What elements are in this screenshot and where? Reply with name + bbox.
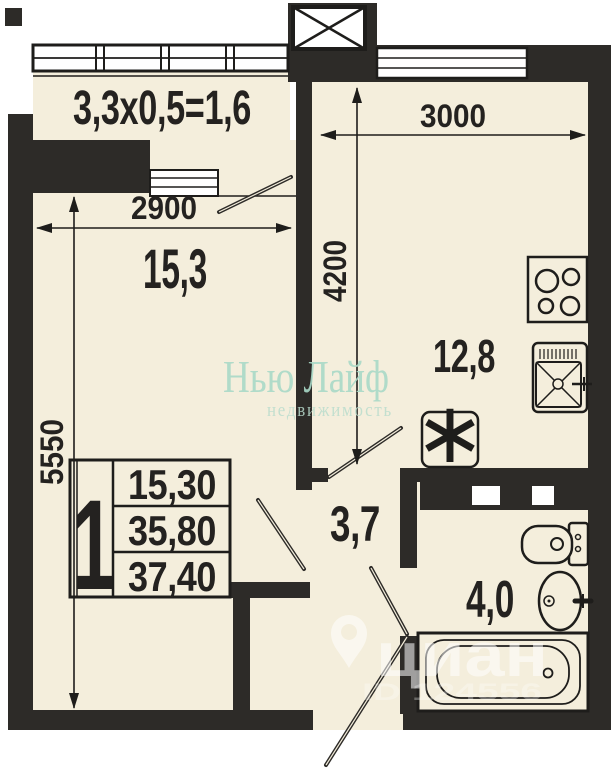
wall-bottom-right bbox=[403, 710, 611, 730]
wall-top-left-pier bbox=[5, 8, 22, 26]
washing-machine-icon: ∗ bbox=[414, 386, 485, 481]
wall-hall-stub bbox=[230, 582, 310, 598]
portal-watermark-id: ID 124556 bbox=[362, 679, 542, 706]
dim-label-2900: 2900 bbox=[131, 190, 197, 226]
balcony-area-label: 3,3x0,5=1,6 bbox=[73, 82, 251, 135]
table-total-area: 37,40 bbox=[128, 553, 216, 600]
duct-band bbox=[420, 482, 588, 510]
wall-kitchen-door-stub bbox=[296, 468, 328, 482]
dim-label-5550: 5550 bbox=[34, 419, 70, 485]
wall-hall-lower bbox=[233, 598, 250, 712]
wall-bottom-left bbox=[8, 710, 313, 730]
kitchen-area-label: 12,8 bbox=[433, 330, 495, 382]
table-living-area: 15,30 bbox=[128, 461, 216, 508]
stove-icon bbox=[528, 257, 587, 322]
kitchen-window bbox=[377, 48, 527, 78]
dim-label-3000: 3000 bbox=[420, 98, 486, 134]
wall-left bbox=[8, 114, 33, 730]
toilet-icon bbox=[522, 523, 588, 565]
table-rooms-count: 1 bbox=[72, 474, 114, 617]
wall-bath-left-upper bbox=[400, 482, 417, 568]
living-area-label: 15,3 bbox=[143, 237, 207, 300]
hall-area-label: 3,7 bbox=[330, 496, 380, 552]
wall-right bbox=[588, 82, 611, 730]
vent-shaft-icon bbox=[293, 7, 365, 49]
dim-label-4200: 4200 bbox=[317, 240, 353, 302]
table-area-without-balcony: 35,80 bbox=[128, 507, 216, 554]
wall-balcony-bottom bbox=[33, 140, 150, 193]
floor-plan-svg: ∗ bbox=[0, 0, 611, 771]
agency-watermark-subtitle: недвижимость bbox=[267, 400, 393, 421]
washer-asterisk: ∗ bbox=[414, 386, 485, 481]
wall-living-kitchen bbox=[296, 82, 312, 490]
agency-watermark-title: Нью Лайф bbox=[223, 351, 389, 402]
balcony-glazing bbox=[33, 45, 288, 76]
kitchen-sink-icon bbox=[533, 343, 592, 412]
floor-plan-page: ∗ bbox=[0, 0, 611, 771]
